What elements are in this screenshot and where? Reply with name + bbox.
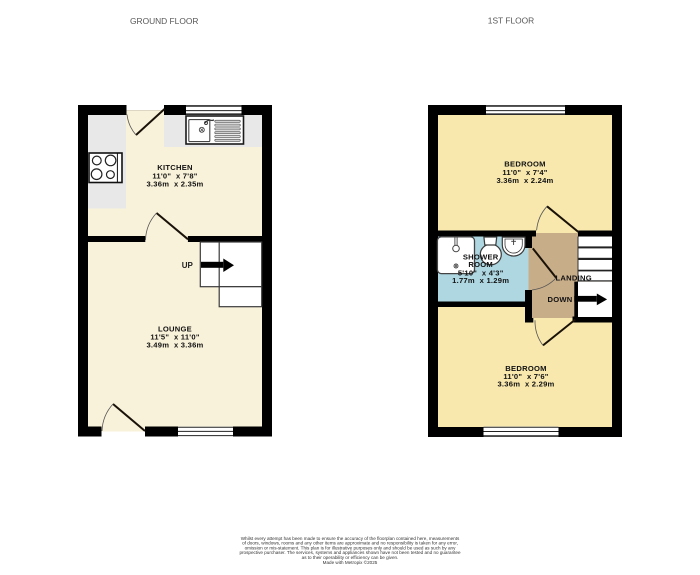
svg-text:DOWN: DOWN <box>547 295 572 304</box>
svg-text:Made with Metropix ©2025: Made with Metropix ©2025 <box>323 559 378 565</box>
svg-text:3.36m x 2.35m: 3.36m x 2.35m <box>146 180 203 189</box>
svg-text:LANDING: LANDING <box>556 274 592 283</box>
svg-text:3.36m x 2.29m: 3.36m x 2.29m <box>497 380 554 389</box>
svg-text:1ST FLOOR: 1ST FLOOR <box>488 16 534 26</box>
svg-text:3.49m x 3.36m: 3.49m x 3.36m <box>146 341 203 350</box>
svg-text:UP: UP <box>182 261 194 270</box>
svg-text:GROUND FLOOR: GROUND FLOOR <box>130 16 198 26</box>
svg-text:1.77m x 1.29m: 1.77m x 1.29m <box>452 276 509 285</box>
svg-text:3.36m x 2.24m: 3.36m x 2.24m <box>496 176 553 185</box>
